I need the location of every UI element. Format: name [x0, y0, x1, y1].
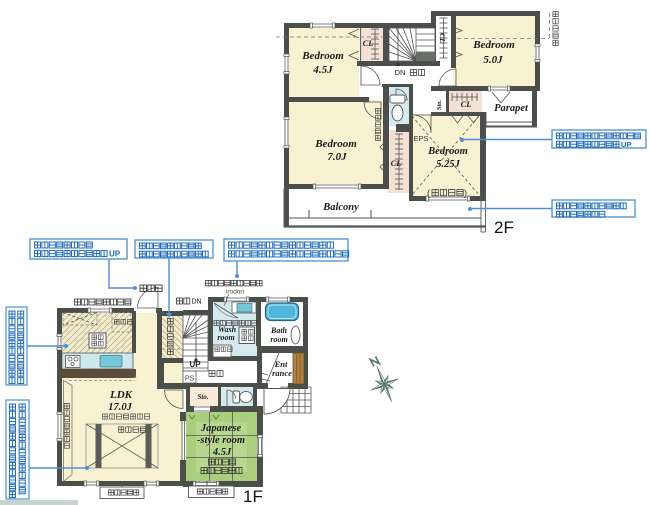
svg-text:DN: DN	[395, 68, 406, 77]
svg-text:Bedroom: Bedroom	[472, 39, 515, 51]
svg-text:Parapet: Parapet	[494, 103, 529, 114]
svg-text:7.0J: 7.0J	[327, 151, 347, 163]
svg-text:Bedroom: Bedroom	[301, 50, 344, 62]
svg-text:CL: CL	[363, 38, 374, 48]
svg-text:room: room	[270, 335, 287, 344]
svg-text:1F: 1F	[243, 487, 263, 505]
svg-text:CL: CL	[461, 99, 472, 109]
svg-text:Bath: Bath	[270, 326, 288, 335]
svg-text:5.0J: 5.0J	[483, 54, 503, 66]
svg-text:17.0J: 17.0J	[108, 402, 132, 413]
svg-text:PS: PS	[185, 376, 195, 383]
svg-text:(: (	[427, 188, 430, 198]
svg-text:Japanese: Japanese	[200, 423, 242, 434]
svg-text:EPS: EPS	[413, 134, 428, 143]
svg-text:UP: UP	[109, 250, 121, 259]
svg-text:LDK: LDK	[109, 389, 133, 401]
svg-text:Bedroom: Bedroom	[427, 146, 468, 157]
svg-text:rance: rance	[272, 368, 292, 378]
svg-text:4.5J: 4.5J	[312, 64, 333, 76]
svg-text:room: room	[217, 333, 234, 342]
svg-text:Bedroom: Bedroom	[314, 138, 357, 150]
svg-text:-style room: -style room	[197, 435, 245, 446]
svg-text:5.25J: 5.25J	[436, 159, 460, 170]
svg-text:CL: CL	[391, 158, 402, 168]
svg-text:Sto.: Sto.	[436, 99, 443, 110]
svg-text:DN: DN	[192, 299, 202, 306]
svg-text:Balcony: Balcony	[322, 202, 359, 213]
svg-text:CL: CL	[438, 33, 447, 43]
svg-text:2F: 2F	[494, 218, 514, 237]
svg-text:4.5J: 4.5J	[212, 447, 232, 458]
svg-text:): )	[464, 188, 467, 198]
svg-text:Sto.: Sto.	[197, 393, 208, 401]
svg-text:UP: UP	[621, 140, 632, 149]
svg-text:UP: UP	[189, 360, 201, 369]
